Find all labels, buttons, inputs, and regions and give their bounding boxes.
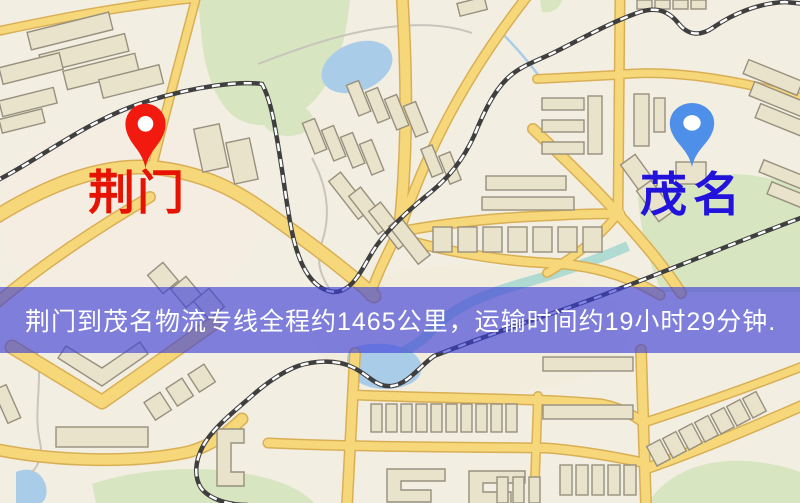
map-view[interactable]: 荆门到茂名物流专线全程约1465公里，运输时间约19小时29分钟. 荆门 茂名 xyxy=(0,0,800,503)
destination-label: 茂名 xyxy=(640,172,746,219)
route-banner-text: 荆门到茂名物流专线全程约1465公里，运输时间约19小时29分钟. xyxy=(0,302,776,338)
route-banner: 荆门到茂名物流专线全程约1465公里，运输时间约19小时29分钟. xyxy=(0,287,800,353)
origin-label: 荆门 xyxy=(88,170,186,217)
map-canvas[interactable] xyxy=(0,0,800,503)
map-pin-icon xyxy=(122,102,169,172)
map-pin-icon xyxy=(666,102,718,170)
